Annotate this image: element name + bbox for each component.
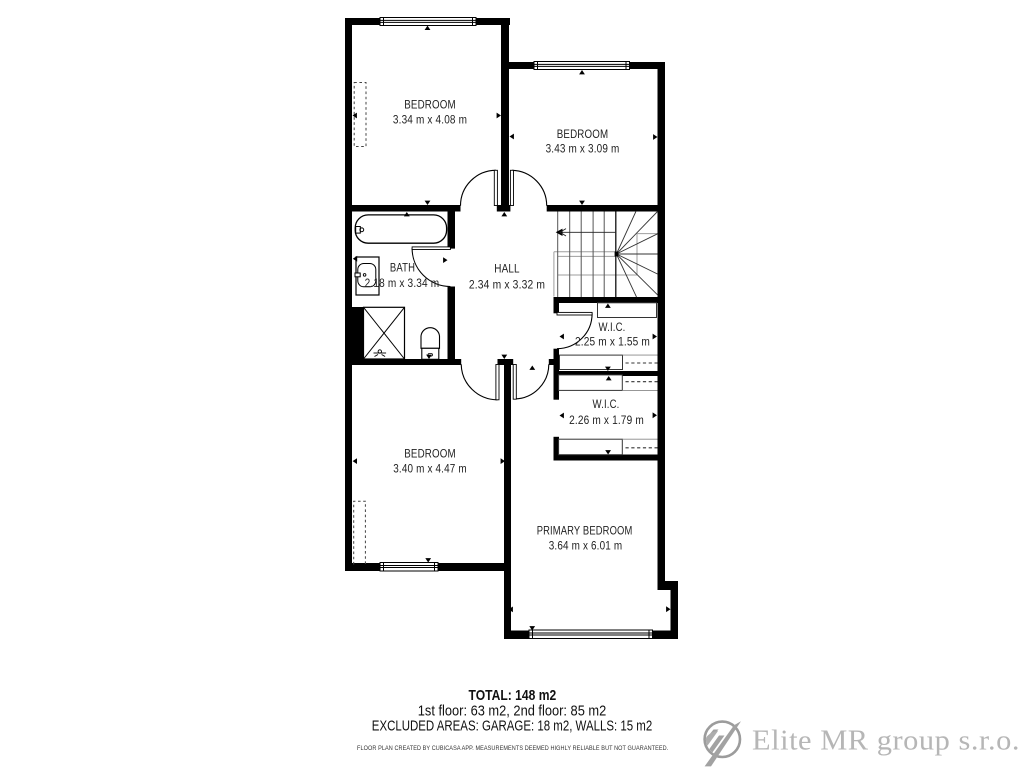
svg-text:3.40 m x 4.47 m: 3.40 m x 4.47 m: [393, 462, 467, 476]
svg-text:W.I.C.: W.I.C.: [599, 320, 626, 334]
svg-text:BEDROOM: BEDROOM: [404, 98, 456, 112]
svg-text:2.34 m x 3.32 m: 2.34 m x 3.32 m: [469, 278, 545, 292]
svg-text:BEDROOM: BEDROOM: [404, 447, 456, 461]
svg-text:BATH: BATH: [390, 260, 415, 274]
svg-text:3.64 m x 6.01 m: 3.64 m x 6.01 m: [549, 539, 623, 553]
svg-text:HALL: HALL: [494, 262, 520, 276]
svg-text:2.26 m x 1.79 m: 2.26 m x 1.79 m: [569, 413, 644, 427]
svg-text:EXCLUDED AREAS: GARAGE: 18 m2,: EXCLUDED AREAS: GARAGE: 18 m2, WALLS: 15…: [372, 719, 652, 735]
svg-text:PRIMARY BEDROOM: PRIMARY BEDROOM: [537, 524, 633, 538]
svg-text:BEDROOM: BEDROOM: [557, 127, 609, 141]
svg-text:Elite MR group s.r.o.: Elite MR group s.r.o.: [752, 726, 1020, 757]
svg-text:3.43 m x 3.09 m: 3.43 m x 3.09 m: [546, 142, 620, 156]
svg-text:2.18 m x 3.34 m: 2.18 m x 3.34 m: [365, 276, 440, 290]
svg-text:W.I.C.: W.I.C.: [593, 397, 620, 411]
svg-text:TOTAL: 148 m2: TOTAL: 148 m2: [469, 688, 557, 704]
svg-text:3.34 m x 4.08 m: 3.34 m x 4.08 m: [393, 113, 467, 127]
svg-text:FLOOR PLAN CREATED BY CUBICASA: FLOOR PLAN CREATED BY CUBICASA APP. MEAS…: [357, 745, 668, 752]
svg-text:2.25 m x 1.55 m: 2.25 m x 1.55 m: [575, 334, 650, 348]
svg-text:1st floor: 63 m2, 2nd floor: 8: 1st floor: 63 m2, 2nd floor: 85 m2: [418, 704, 607, 720]
